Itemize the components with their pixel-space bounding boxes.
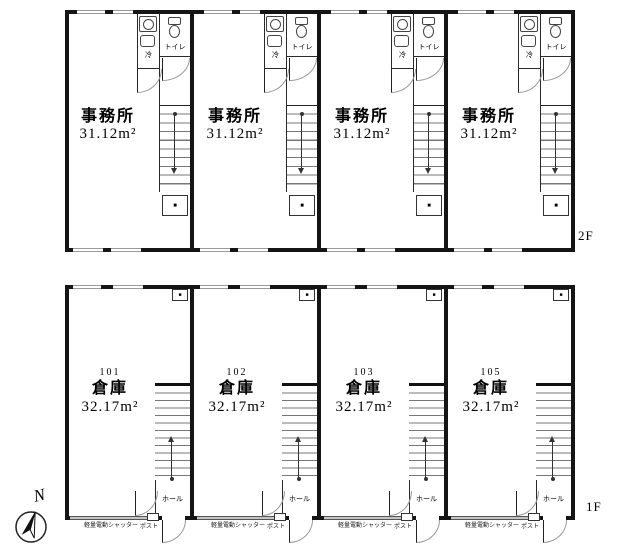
toilet-label: トイレ <box>414 43 444 51</box>
toilet-label: トイレ <box>287 43 317 51</box>
fridge-label: 冷 <box>264 51 287 59</box>
kitchen-sink-icon <box>266 16 284 32</box>
second-floor-plan: 事務所 31.12m² 冷 トイレ ■ 事務所 31.12m² <box>65 10 575 252</box>
office-unit: 事務所 31.12m² 冷 トイレ ■ <box>65 10 192 252</box>
closet-glyph: ■ <box>427 203 431 209</box>
wall <box>287 56 317 57</box>
closet-box: ■ <box>162 195 188 216</box>
office-unit: 事務所 31.12m² 冷 トイレ ■ <box>319 10 446 252</box>
floor-plan-canvas: 事務所 31.12m² 冷 トイレ ■ 事務所 31.12m² <box>0 0 620 553</box>
post-label: ポスト <box>260 524 292 531</box>
kitchen-counter-icon <box>140 35 155 47</box>
office-unit: 事務所 31.12m² 冷 トイレ ■ <box>192 10 319 252</box>
warehouse-unit: ■ 101 倉庫 32.17m² ホール 軽量電動シャッター ポスト <box>65 285 192 520</box>
window <box>240 10 260 14</box>
stair-arrow-up <box>171 441 172 479</box>
window <box>238 248 268 252</box>
entrance-door <box>162 520 186 543</box>
room-label: 倉庫 <box>321 380 407 398</box>
window <box>77 10 105 14</box>
room-label: 事務所 <box>194 108 276 126</box>
shutter <box>324 516 409 520</box>
wall <box>160 56 190 57</box>
stair-arrow-down <box>174 114 175 169</box>
wall <box>541 56 571 57</box>
area-label: 32.17m² <box>67 399 153 416</box>
window <box>454 285 482 289</box>
room-label: 倉庫 <box>67 380 153 398</box>
stairs <box>287 105 317 192</box>
hall-label: ホール <box>409 495 444 503</box>
window <box>111 248 141 252</box>
hall-label: ホール <box>155 495 190 503</box>
closet-box: ■ <box>289 195 315 216</box>
area-label: 31.12m² <box>194 126 276 143</box>
area-label: 32.17m² <box>448 399 534 416</box>
toilet-bowl-icon <box>423 25 434 38</box>
shutter <box>70 516 155 520</box>
window <box>204 10 232 14</box>
area-label: 32.17m² <box>194 399 280 416</box>
toilet-icon <box>168 17 181 25</box>
area-label: 32.17m² <box>321 399 407 416</box>
stair-arrow-up <box>298 441 299 479</box>
room-label-block: 102 倉庫 32.17m² <box>194 367 280 416</box>
closet-glyph: ■ <box>554 203 558 209</box>
toilet-door <box>289 58 317 81</box>
toilet-bowl-icon <box>169 25 180 38</box>
room-label: 事務所 <box>448 108 530 126</box>
window <box>240 285 270 289</box>
kitchen-sink-icon <box>393 16 411 32</box>
wall <box>518 14 519 69</box>
wall <box>137 14 138 69</box>
post-label: ポスト <box>387 524 419 531</box>
room-label-block: 事務所 31.12m² <box>67 108 149 144</box>
warehouse-unit: ■ 105 倉庫 32.17m² ホール 軽量電動シャッター ポスト <box>446 285 573 520</box>
post-box <box>528 513 540 521</box>
room-label: 倉庫 <box>194 380 280 398</box>
stair-arrow-down <box>555 114 556 169</box>
stair-arrow-down <box>428 114 429 169</box>
stairs <box>409 383 444 480</box>
window <box>327 248 357 252</box>
window <box>200 285 228 289</box>
window <box>73 285 101 289</box>
office-unit: 事務所 31.12m² 冷 トイレ ■ <box>446 10 573 252</box>
fridge-label: 冷 <box>137 51 160 59</box>
room-label: 事務所 <box>321 108 403 126</box>
fridge-label: 冷 <box>391 51 414 59</box>
warehouse-unit: ■ 103 倉庫 32.17m² ホール 軽量電動シャッター ポスト <box>319 285 446 520</box>
wall <box>264 14 265 69</box>
wall <box>391 14 392 69</box>
window <box>494 285 524 289</box>
window <box>454 248 484 252</box>
room-label-block: 事務所 31.12m² <box>448 108 530 144</box>
hall-label: ホール <box>536 495 571 503</box>
closet-box: ■ <box>543 195 569 216</box>
stairs <box>282 383 317 480</box>
room-label-block: 事務所 31.12m² <box>194 108 276 144</box>
toilet-icon <box>549 17 562 25</box>
entrance-door <box>289 520 313 543</box>
stairs <box>155 383 190 480</box>
window <box>113 285 143 289</box>
area-label: 31.12m² <box>321 126 403 143</box>
room-label-block: 103 倉庫 32.17m² <box>321 367 407 416</box>
unit-number: 101 <box>67 367 153 379</box>
toilet-door <box>416 58 444 81</box>
first-floor-plan: ■ 101 倉庫 32.17m² ホール 軽量電動シャッター ポスト ■ 102… <box>65 285 575 520</box>
kitchen-counter-icon <box>394 35 409 47</box>
shutter <box>451 516 536 520</box>
window <box>113 10 133 14</box>
toilet-icon <box>422 17 435 25</box>
stair-arrow-up <box>425 441 426 479</box>
room-label-block: 105 倉庫 32.17m² <box>448 367 534 416</box>
toilet-label: トイレ <box>541 43 571 51</box>
room-label-block: 101 倉庫 32.17m² <box>67 367 153 416</box>
shutter <box>197 516 282 520</box>
room-label: 事務所 <box>67 108 149 126</box>
post-label: ポスト <box>133 524 165 531</box>
toilet-door <box>543 58 571 81</box>
stair-arrow-up <box>552 441 553 479</box>
meter-glyph: ■ <box>178 293 181 298</box>
meter-box: ■ <box>426 289 442 301</box>
unit-number: 102 <box>194 367 280 379</box>
post-label: ポスト <box>514 524 546 531</box>
window <box>365 248 395 252</box>
window <box>367 10 387 14</box>
compass: N <box>10 486 58 550</box>
entrance-door <box>543 520 567 543</box>
toilet-label: トイレ <box>160 43 190 51</box>
warehouse-unit: ■ 102 倉庫 32.17m² ホール 軽量電動シャッター ポスト <box>192 285 319 520</box>
stairs <box>536 383 571 480</box>
window <box>458 10 486 14</box>
area-label: 31.12m² <box>67 126 149 143</box>
hall-label: ホール <box>282 495 317 503</box>
room-label-block: 事務所 31.12m² <box>321 108 403 144</box>
window <box>492 248 522 252</box>
stairs <box>541 105 571 192</box>
window <box>367 285 397 289</box>
kitchen-counter-icon <box>267 35 282 47</box>
floor-label-1f: 1F <box>586 499 602 515</box>
post-box <box>401 513 413 521</box>
meter-glyph: ■ <box>559 293 562 298</box>
entrance-door <box>416 520 440 543</box>
toilet-bowl-icon <box>296 25 307 38</box>
unit-number: 103 <box>321 367 407 379</box>
kitchen-counter-icon <box>521 35 536 47</box>
kitchen-sink-icon <box>139 16 157 32</box>
room-label: 倉庫 <box>448 380 534 398</box>
toilet-icon <box>295 17 308 25</box>
window <box>331 10 359 14</box>
meter-glyph: ■ <box>305 293 308 298</box>
window <box>327 285 355 289</box>
area-label: 31.12m² <box>448 126 530 143</box>
meter-box: ■ <box>172 289 188 301</box>
north-label: N <box>31 486 49 506</box>
wall <box>414 56 444 57</box>
window <box>200 248 230 252</box>
stairs <box>160 105 190 192</box>
closet-box: ■ <box>416 195 442 216</box>
toilet-bowl-icon <box>550 25 561 38</box>
meter-glyph: ■ <box>432 293 435 298</box>
floor-label-2f: 2F <box>578 228 594 244</box>
closet-glyph: ■ <box>173 203 177 209</box>
toilet-door <box>162 58 190 81</box>
closet-glyph: ■ <box>300 203 304 209</box>
post-box <box>274 513 286 521</box>
stairs <box>414 105 444 192</box>
meter-box: ■ <box>553 289 569 301</box>
post-box <box>147 513 159 521</box>
window <box>73 248 103 252</box>
window <box>494 10 514 14</box>
fridge-label: 冷 <box>518 51 541 59</box>
kitchen-sink-icon <box>520 16 538 32</box>
meter-box: ■ <box>299 289 315 301</box>
stair-arrow-down <box>301 114 302 169</box>
unit-number: 105 <box>448 367 534 379</box>
